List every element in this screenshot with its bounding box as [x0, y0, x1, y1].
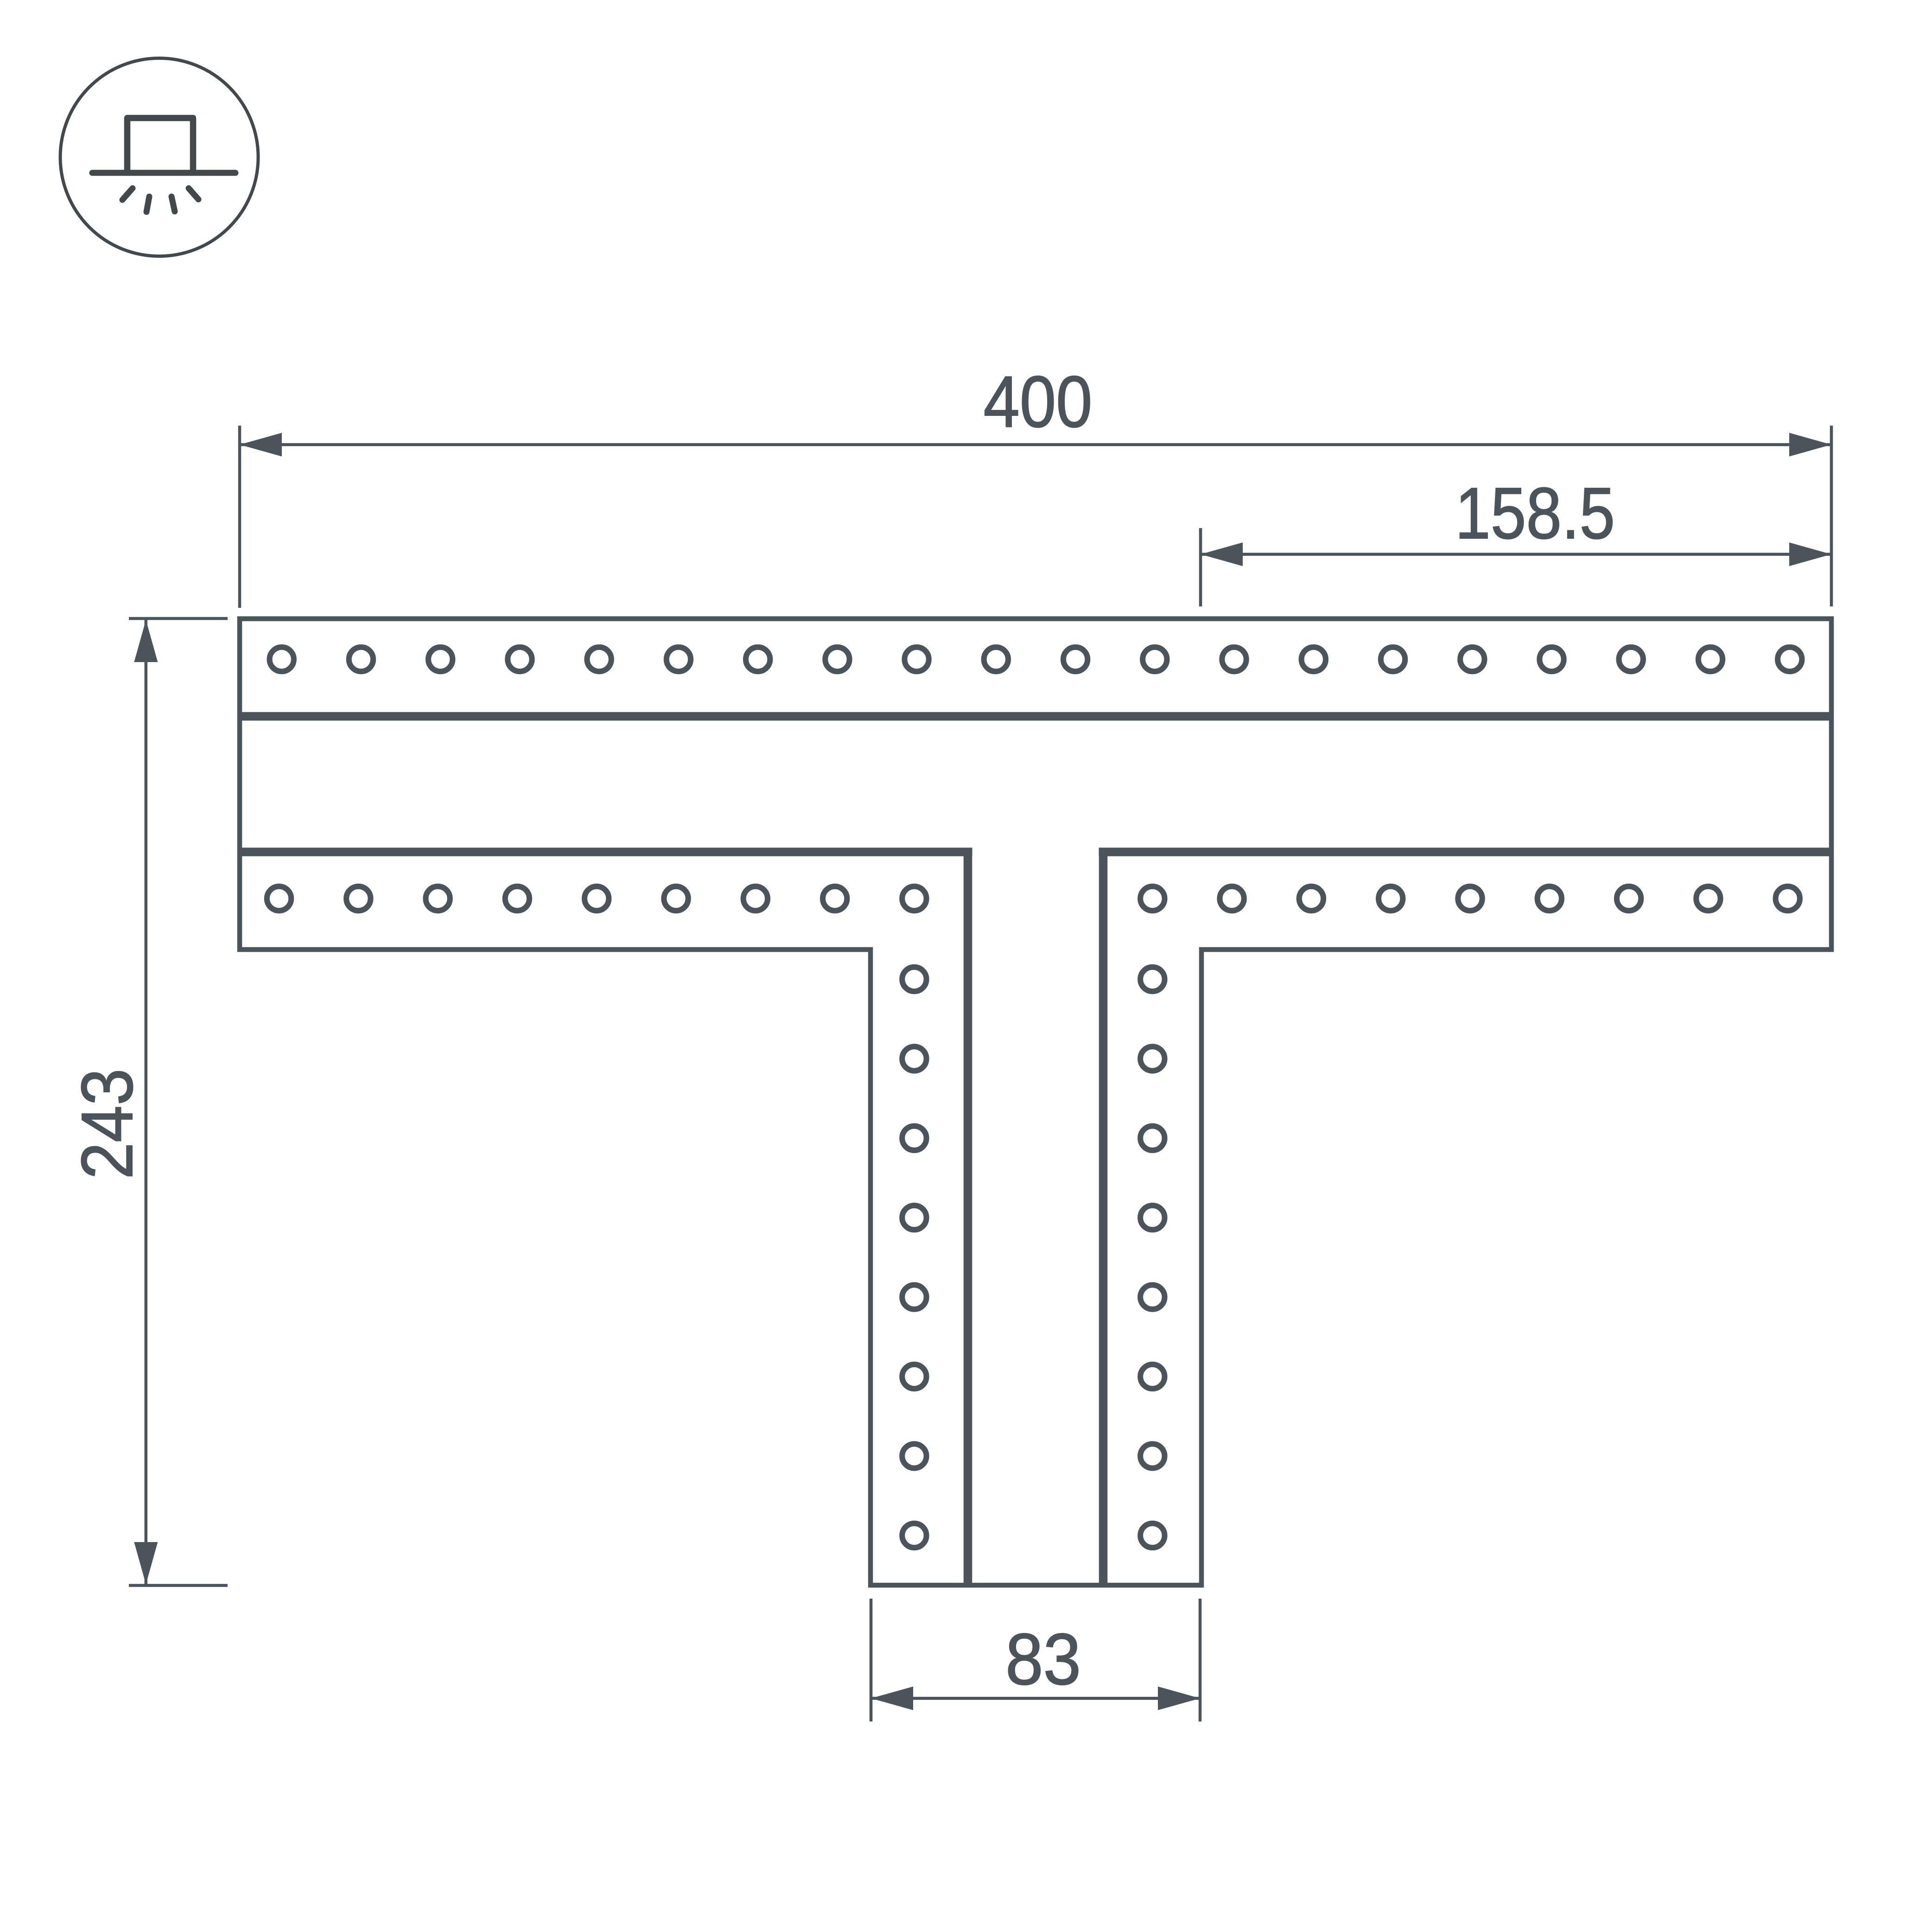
svg-text:83: 83 [1005, 1619, 1081, 1700]
svg-text:243: 243 [67, 1069, 148, 1180]
svg-text:400: 400 [984, 362, 1093, 443]
svg-text:158.5: 158.5 [1455, 473, 1615, 554]
